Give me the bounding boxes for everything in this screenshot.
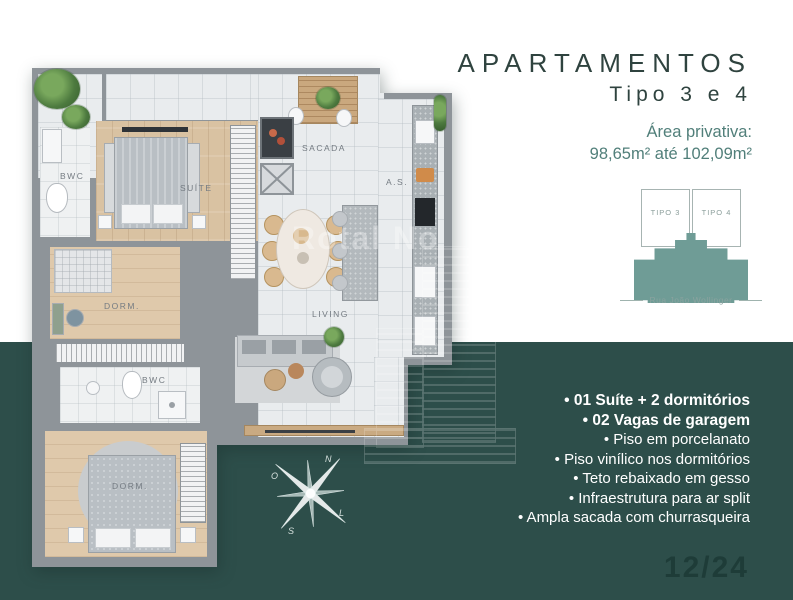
plant-icon <box>324 327 344 347</box>
coffee-table <box>288 363 304 379</box>
street-name: Rua João Wollinger <box>649 295 732 305</box>
room-label-bwc-suite: BWC <box>60 171 84 181</box>
dorm-mid-wardrobe <box>55 343 185 363</box>
desk <box>52 303 64 335</box>
grill-churrasqueira <box>260 117 294 159</box>
desk-chair <box>66 309 84 327</box>
feature-item: • Ampla sacada com churrasqueira <box>518 508 750 528</box>
coffee-table <box>264 369 286 391</box>
nightstand <box>98 215 112 229</box>
street-dash <box>739 300 762 301</box>
compass-east-label: L <box>339 508 344 518</box>
plant-icon <box>434 95 446 131</box>
watermark-building-graphic <box>372 246 522 466</box>
header-block: APARTAMENTOS Tipo 3 e 4 Área privativa: … <box>458 48 752 164</box>
toilet <box>122 371 142 399</box>
double-bed <box>88 455 176 553</box>
plant-icon <box>62 105 90 129</box>
suite-wardrobe <box>230 125 256 280</box>
service-shaft <box>260 163 294 195</box>
stool <box>332 275 348 291</box>
kitchen-sink <box>415 120 435 144</box>
feature-item: • Piso vinílico nos dormitórios <box>518 450 750 470</box>
room-label-bwc-social: BWC <box>142 375 166 385</box>
keyplan-unit-tipo3: TIPO 3 <box>641 189 690 247</box>
street-dash <box>620 300 643 301</box>
cutting-board <box>416 168 434 182</box>
compass-south-label: S <box>288 526 294 536</box>
compass-west-label: O <box>271 471 278 481</box>
feature-item: • 01 Suíte + 2 dormitórios <box>518 391 750 411</box>
room-label-sacada: SACADA <box>302 143 346 153</box>
keyplan: TIPO 3 TIPO 4 Rua João Wollinger <box>620 183 762 313</box>
feature-item: • Piso em porcelanato <box>518 430 750 450</box>
page-subtitle: Tipo 3 e 4 <box>458 83 752 107</box>
plant-icon <box>34 69 80 109</box>
plant-icon <box>316 87 340 109</box>
sink <box>86 381 100 395</box>
compass-icon: N O S L <box>263 446 358 541</box>
brochure-page: BWC SUÍTE SACADA A.S. DORM. LIVING BWC D… <box>0 0 793 600</box>
room-label-living: LIVING <box>312 309 349 319</box>
vanity <box>42 129 62 163</box>
area-value: 98,65m² até 102,09m² <box>458 145 752 164</box>
room-label-dorm-bottom: DORM. <box>112 481 148 491</box>
keyplan-unit-label: TIPO 3 <box>642 208 689 217</box>
nightstand <box>192 215 206 229</box>
keyplan-street-row: Rua João Wollinger <box>620 295 762 305</box>
room-label-servico: A.S. <box>386 177 408 187</box>
compass-north-label: N <box>325 454 332 464</box>
room-label-suite: SUÍTE <box>180 183 213 193</box>
features-list: • 01 Suíte + 2 dormitórios • 02 Vagas de… <box>518 391 750 528</box>
keyplan-unit-tipo4: TIPO 4 <box>692 189 741 247</box>
feature-item: • Teto rebaixado em gesso <box>518 469 750 489</box>
shower <box>158 391 186 419</box>
nightstand <box>180 527 196 543</box>
keyplan-unit-label: TIPO 4 <box>693 208 740 217</box>
room-label-dorm-mid: DORM. <box>104 301 140 311</box>
page-number: 12/24 <box>664 551 749 585</box>
suite-bed <box>114 137 188 229</box>
sacada-chair <box>336 109 352 127</box>
toilet <box>46 183 68 213</box>
nightstand <box>68 527 84 543</box>
single-bed <box>54 249 112 293</box>
armchair <box>312 357 352 397</box>
feature-item: • Infraestrutura para ar split <box>518 489 750 509</box>
page-title: APARTAMENTOS <box>458 48 752 79</box>
area-label: Área privativa: <box>458 123 752 142</box>
dorm-bottom-wardrobe <box>180 443 206 523</box>
feature-item: • 02 Vagas de garagem <box>518 411 750 431</box>
suite-tv-shelf <box>122 127 188 132</box>
